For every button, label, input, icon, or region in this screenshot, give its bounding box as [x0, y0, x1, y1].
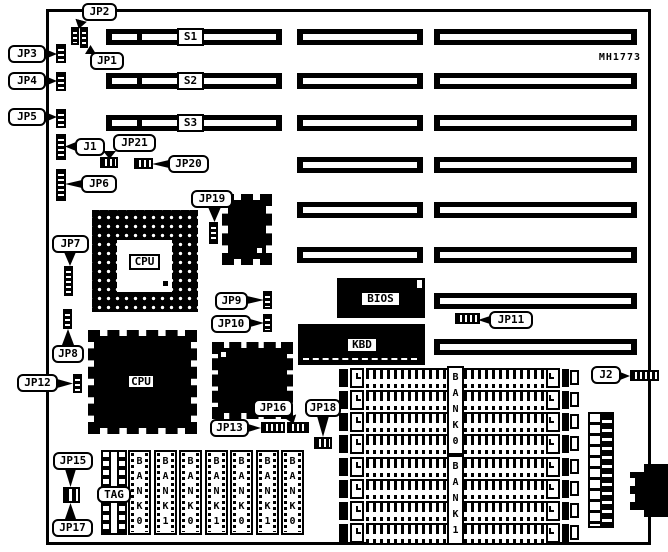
simm-end	[562, 369, 569, 387]
chip-pins	[233, 453, 236, 532]
slot-key-stripe	[142, 78, 276, 84]
cache-chip-label: BANK0	[238, 454, 246, 529]
cpu-socket-label: CPU	[129, 254, 160, 270]
slot-key-stripe	[142, 34, 276, 40]
pin1-marker-dot	[221, 352, 226, 357]
slot-right-segment	[434, 29, 637, 45]
label-j2: J2	[591, 366, 621, 384]
chip-pins	[259, 453, 262, 532]
simm-latch	[546, 434, 560, 454]
slot-key-stripe	[303, 162, 417, 168]
jp16-jumper	[287, 422, 309, 433]
bios-chip-notch	[417, 280, 422, 288]
cache-chip-5: BANK0	[230, 450, 253, 535]
chip-pins	[247, 453, 250, 532]
slot-key-stripe	[440, 298, 631, 304]
latch-hook	[549, 373, 554, 379]
power-connector-pins	[590, 414, 602, 526]
label-jp2: JP2	[82, 3, 117, 21]
slot-mid-segment	[297, 202, 423, 218]
slot-right-segment	[434, 157, 637, 173]
simm-latch	[546, 412, 560, 432]
slot-right-segment	[434, 339, 637, 355]
slot-key-stripe	[440, 162, 631, 168]
jp4-jumper	[56, 72, 66, 91]
label-jp5: JP5	[8, 108, 46, 126]
label-jp8: JP8	[52, 345, 84, 363]
latch-hook	[356, 373, 361, 379]
label-jp16: JP16	[253, 399, 293, 417]
label-jp21: JP21	[113, 134, 156, 152]
slot-mid-segment	[297, 29, 423, 45]
jp18-jumper	[314, 437, 332, 449]
chip-pins	[131, 453, 134, 532]
simm-latch	[546, 479, 560, 499]
chip-pins	[284, 453, 287, 532]
simm-end	[562, 480, 569, 498]
latch-hook	[549, 417, 554, 423]
jp21-jumper	[100, 157, 118, 168]
simm-end	[562, 502, 569, 520]
simm-end	[562, 391, 569, 409]
chip-pins	[171, 453, 174, 532]
simm-latch	[546, 501, 560, 521]
cache-chip-3: BANK0	[179, 450, 202, 535]
simm-latch	[350, 501, 364, 521]
pin1-marker-dot	[163, 281, 168, 286]
kbd-label: KBD	[346, 337, 378, 353]
jp9-jumper	[263, 291, 272, 309]
simm-latch	[546, 457, 560, 477]
simm-end-cap	[570, 370, 579, 385]
latch-hook	[549, 528, 554, 534]
slot-mid-segment	[297, 115, 423, 131]
jp8-jumper	[63, 309, 72, 329]
label-jp7: JP7	[52, 235, 89, 253]
slot-right-segment	[434, 247, 637, 263]
label-jp10: JP10	[211, 315, 251, 333]
jp7-jumper	[64, 266, 73, 296]
label-jp20: JP20	[168, 155, 209, 173]
slot-right-segment	[434, 73, 637, 89]
simm-latch	[350, 457, 364, 477]
latch-hook	[549, 395, 554, 401]
label-jp15: JP15	[53, 452, 93, 470]
cache-chip-label: BANK1	[213, 454, 221, 529]
latch-hook	[549, 462, 554, 468]
simm-latch	[350, 368, 364, 388]
slot-right-segment	[434, 293, 637, 309]
simm-end-cap	[570, 414, 579, 429]
slot-mid-segment	[297, 247, 423, 263]
jp13-jumper	[261, 422, 285, 433]
label-jp4: JP4	[8, 72, 46, 90]
label-jp17: JP17	[52, 519, 93, 537]
slot-key-stripe	[112, 120, 137, 126]
jp3-jumper	[56, 44, 66, 63]
cache-chip-label: BANK0	[136, 454, 144, 529]
chip-pins	[208, 453, 211, 532]
label-jp18: JP18	[305, 399, 341, 417]
latch-hook	[356, 439, 361, 445]
slot-key-stripe	[303, 120, 417, 126]
simm-latch	[350, 434, 364, 454]
jp1-jumper	[80, 27, 88, 48]
chip-pins	[196, 453, 199, 532]
simm-end-cap	[570, 436, 579, 451]
din-notch	[628, 494, 635, 502]
pin1-marker-dot	[257, 248, 262, 253]
simm-latch	[546, 368, 560, 388]
slot-key-stripe	[112, 34, 137, 40]
keyboard-din-connector	[644, 464, 668, 517]
simm-bank0-label: BANK0	[447, 366, 464, 455]
slot-key-stripe	[303, 207, 417, 213]
latch-hook	[356, 395, 361, 401]
jp20-jumper	[134, 158, 153, 169]
label-jp19: JP19	[191, 190, 233, 208]
label-jp6: JP6	[81, 175, 117, 193]
cpu-chip-label: CPU	[127, 374, 155, 389]
slot-key-stripe	[440, 120, 631, 126]
simm-latch	[546, 523, 560, 543]
label-jp9: JP9	[215, 292, 248, 310]
slot-mid-segment	[297, 157, 423, 173]
label-j1: J1	[75, 138, 105, 156]
label-jp11: JP11	[489, 311, 533, 329]
latch-hook	[356, 506, 361, 512]
simm-end	[339, 413, 348, 431]
label-tag: TAG	[97, 486, 131, 503]
bank-label-text: BANK1	[452, 459, 460, 539]
latch-hook	[549, 439, 554, 445]
j1-jumper	[56, 134, 66, 160]
simm-end	[339, 435, 348, 453]
din-notch	[628, 478, 635, 486]
simm-end	[562, 413, 569, 431]
cache-chip-label: BANK0	[187, 454, 195, 529]
simm-end-cap	[570, 459, 579, 474]
slot-key-stripe	[440, 207, 631, 213]
motherboard-diagram: MH1773 S1 S2 S3 CPU CPU BIOS KBD	[0, 0, 668, 552]
cache-chip-label: BANK0	[289, 454, 297, 529]
simm-end	[339, 502, 348, 520]
simm-end-cap	[570, 503, 579, 518]
label-jp12: JP12	[17, 374, 58, 392]
jp10-jumper	[263, 314, 272, 332]
latch-hook	[356, 417, 361, 423]
cache-chip-1: BANK0	[128, 450, 151, 535]
cache-chip-2: BANK1	[154, 450, 177, 535]
power-connector	[588, 412, 614, 528]
chip-pins	[222, 453, 225, 532]
slot-key-stripe	[440, 344, 631, 350]
simm-latch	[350, 479, 364, 499]
latch-hook	[549, 506, 554, 512]
slot-right-segment	[434, 115, 637, 131]
bios-label: BIOS	[360, 291, 401, 307]
simm-end-cap	[570, 481, 579, 496]
power-connector-body	[602, 414, 612, 526]
simm-end-cap	[570, 525, 579, 540]
cache-chip-label: BANK1	[162, 454, 170, 529]
jp12-jumper	[73, 374, 82, 393]
jp2-jumper	[71, 27, 79, 45]
slot-key-stripe	[112, 78, 137, 84]
simm-end	[562, 435, 569, 453]
jp6-jumper	[56, 169, 66, 201]
chip-pins	[298, 453, 301, 532]
latch-hook	[549, 484, 554, 490]
bank-label-text: BANK0	[452, 370, 460, 450]
label-jp1: JP1	[90, 52, 124, 70]
slot-label-s3: S3	[177, 114, 204, 132]
label-jp13: JP13	[210, 419, 249, 437]
label-jp3: JP3	[8, 45, 46, 63]
latch-hook	[356, 484, 361, 490]
slot-key-stripe	[142, 120, 276, 126]
jp5-jumper	[56, 109, 66, 128]
chip-pins	[157, 453, 160, 532]
simm-end	[562, 458, 569, 476]
slot-key-stripe	[303, 34, 417, 40]
chip-pins	[273, 453, 276, 532]
cache-chip-6: BANK1	[256, 450, 279, 535]
slot-key-stripe	[303, 252, 417, 258]
slot-label-s2: S2	[177, 72, 204, 90]
jp11-jumper	[455, 313, 480, 324]
simm-end	[339, 480, 348, 498]
simm-end	[339, 458, 348, 476]
simm-latch	[350, 412, 364, 432]
chip-pins	[145, 453, 148, 532]
cache-chip-label: BANK1	[264, 454, 272, 529]
simm-end-cap	[570, 392, 579, 407]
cache-chip-4: BANK1	[205, 450, 228, 535]
slot-right-segment	[434, 202, 637, 218]
latch-hook	[356, 528, 361, 534]
simm-latch	[350, 523, 364, 543]
simm-bank1-label: BANK1	[447, 455, 464, 545]
latch-hook	[356, 462, 361, 468]
kbd-socket-dashed-line	[303, 358, 417, 360]
slot-key-stripe	[440, 252, 631, 258]
simm-end	[339, 369, 348, 387]
slot-key-stripe	[303, 78, 417, 84]
jp19-jumper	[209, 222, 218, 244]
simm-end	[562, 524, 569, 542]
simm-latch	[350, 390, 364, 410]
slot-key-stripe	[440, 34, 631, 40]
slot-mid-segment	[297, 73, 423, 89]
simm-latch	[546, 390, 560, 410]
simm-end	[339, 524, 348, 542]
chip-pins	[182, 453, 185, 532]
slot-label-s1: S1	[177, 28, 204, 46]
j2-jumper	[630, 370, 659, 381]
cache-chip-7: BANK0	[281, 450, 304, 535]
part-number-text: MH1773	[583, 52, 641, 64]
jp15-jp17-jumper	[63, 487, 80, 503]
slot-key-stripe	[440, 78, 631, 84]
